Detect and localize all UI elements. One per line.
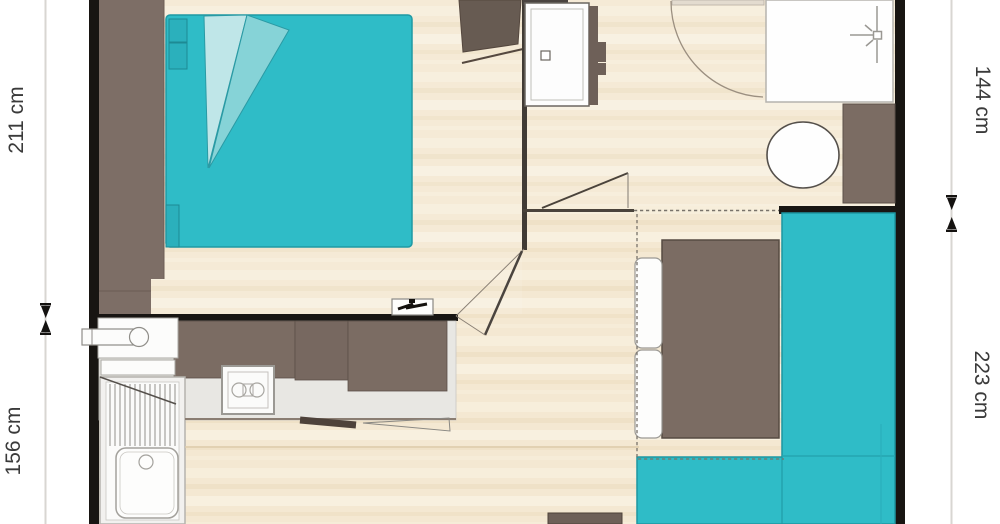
svg-text:211 cm: 211 cm bbox=[5, 86, 28, 153]
svg-text:144 cm: 144 cm bbox=[971, 66, 994, 135]
svg-text:223 cm: 223 cm bbox=[970, 351, 993, 420]
svg-text:156 cm: 156 cm bbox=[2, 407, 25, 476]
